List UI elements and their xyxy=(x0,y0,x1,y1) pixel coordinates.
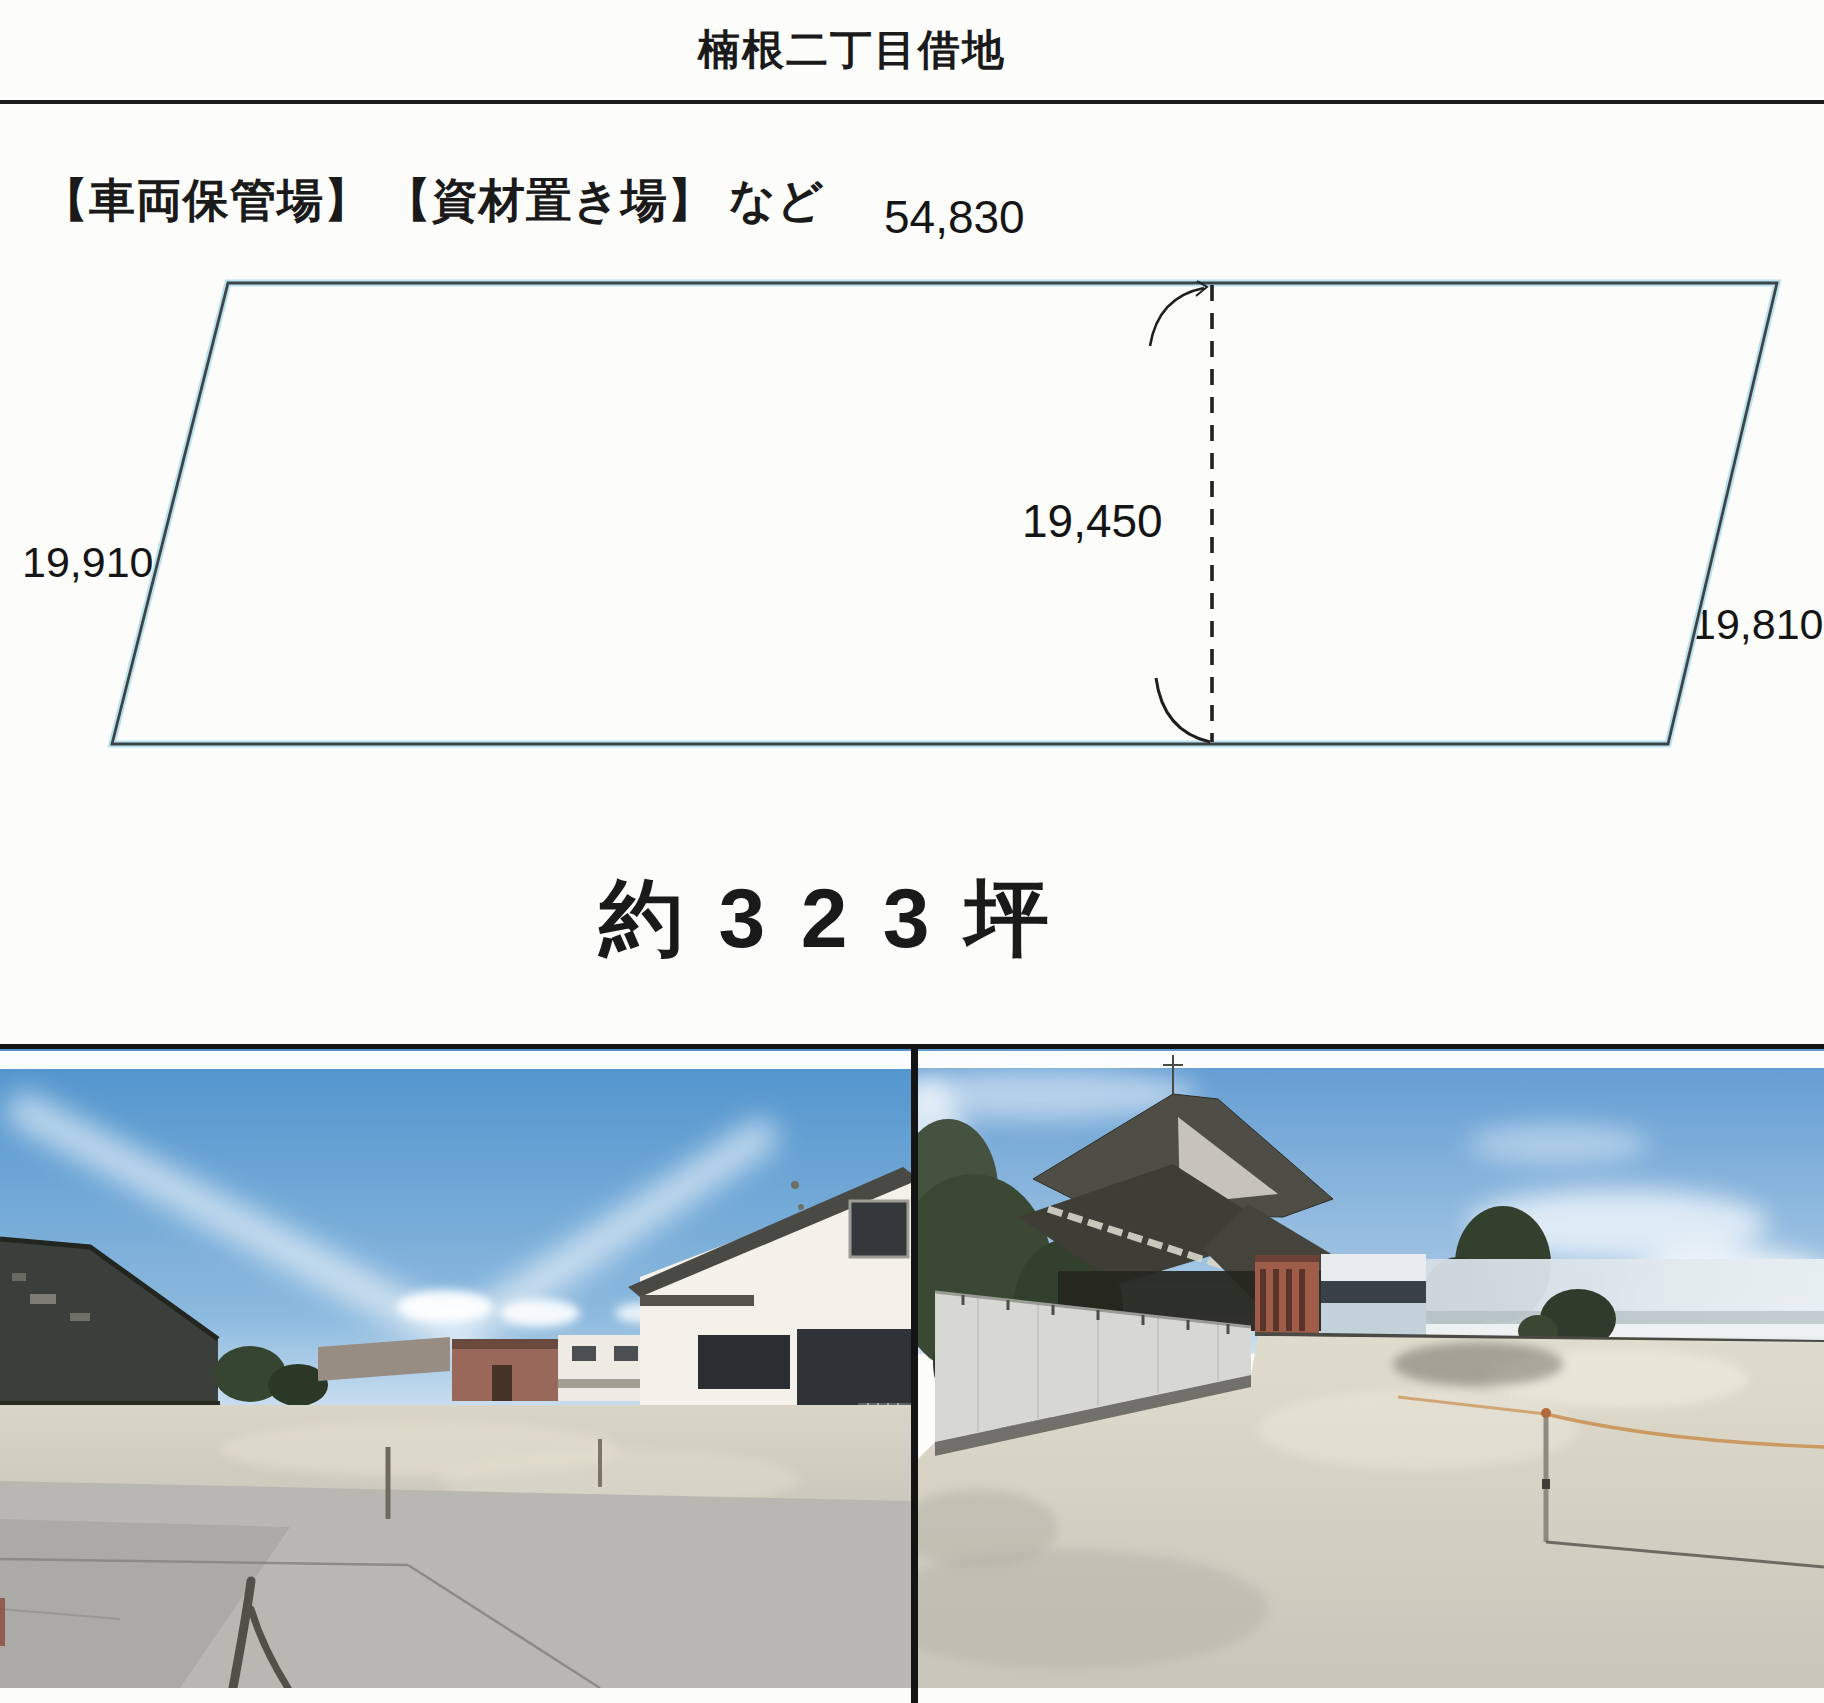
area-label: 約 3 2 3 坪 xyxy=(599,862,1055,976)
right-photo-background-buildings xyxy=(1255,1254,1824,1349)
photo-divider-line xyxy=(911,1044,918,1703)
site-photo-left xyxy=(0,1049,911,1688)
site-photo-right xyxy=(918,1049,1824,1688)
industrial-building xyxy=(1321,1254,1426,1335)
plot-outline xyxy=(112,283,1777,744)
scan-edge-artifact xyxy=(0,1598,5,1646)
left-photo-ground xyxy=(0,1405,911,1688)
ground-shadow xyxy=(1393,1342,1563,1386)
scanned-land-flyer-page: 楠根二丁目借地 【車両保管場】 【資材置き場】 など 54,830 19,910… xyxy=(0,0,1824,1703)
